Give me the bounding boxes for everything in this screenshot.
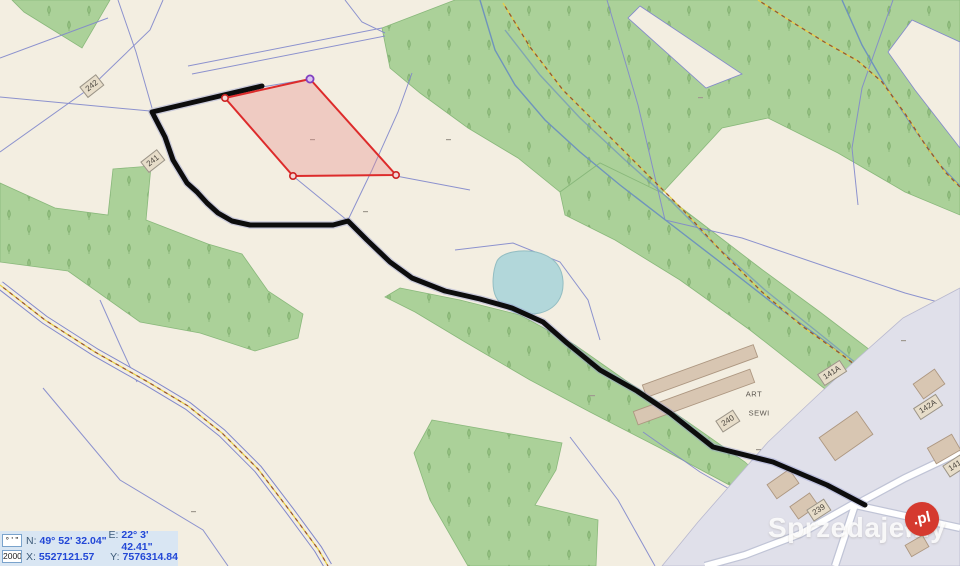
north-label: N: (26, 535, 37, 547)
parcel-vertex-handle-active[interactable] (306, 75, 313, 82)
x-value: 5527121.57 (39, 551, 94, 563)
coordinate-statusbar: ° ' " N: 49° 52' 32.04" E: 22° 3' 42.41"… (0, 531, 178, 566)
north-value: 49° 52' 32.04" (40, 535, 107, 547)
x-label: X: (26, 551, 36, 563)
parcel-vertex-handle[interactable] (290, 173, 296, 179)
parcel-vertex-handle[interactable] (393, 172, 399, 178)
y-value: 7576314.84 (123, 551, 178, 563)
scale-box[interactable]: 2000 (2, 550, 22, 563)
watermark: Sprzedajemy .pl (768, 512, 946, 544)
place-label: ART SEWI (738, 389, 770, 427)
y-label: Y: (110, 551, 119, 563)
coordinate-format-box[interactable]: ° ' " (2, 534, 22, 547)
east-value: 22° 3' 42.41" (121, 529, 178, 553)
map-canvas[interactable] (0, 0, 960, 566)
parcel-vertex-handle[interactable] (222, 95, 228, 101)
statusbar-row-projected: 2000 X: 5527121.57 Y: 7576314.84 (2, 550, 178, 563)
statusbar-row-geographic: ° ' " N: 49° 52' 32.04" E: 22° 3' 42.41" (2, 534, 178, 547)
map-viewport: 242 241 240 239 141A 142A 141 ART SEWI °… (0, 0, 960, 566)
place-label-line1: ART (746, 389, 762, 398)
east-label: E: (108, 529, 118, 553)
place-label-line2: SEWI (749, 408, 770, 417)
